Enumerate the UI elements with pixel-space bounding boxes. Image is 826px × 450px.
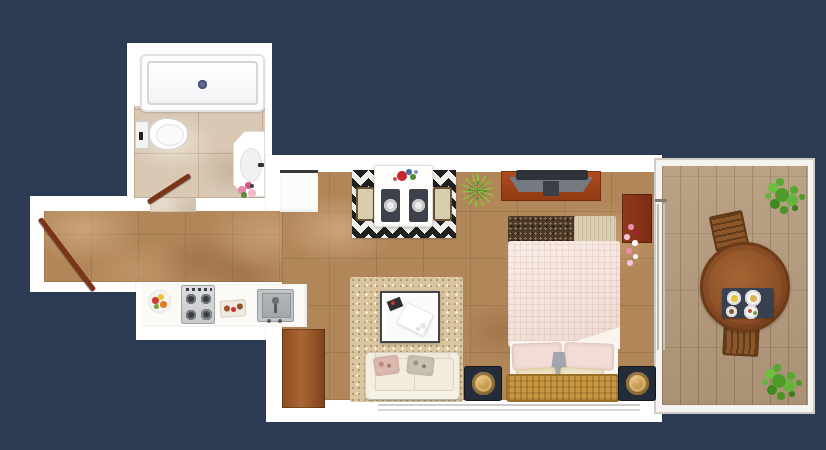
balcony-door-glass	[657, 204, 659, 350]
bed-wicker-bench	[506, 374, 620, 402]
sofa	[365, 352, 460, 400]
floor-plan	[0, 0, 826, 450]
bed-foot-blanket-beige	[574, 216, 616, 243]
nightstand-flowers	[620, 224, 646, 270]
sofa-pillow-right	[406, 355, 435, 377]
entry-cabinet-edge	[280, 170, 318, 173]
toilet-button	[139, 132, 143, 140]
pouf-right	[619, 367, 655, 400]
serving-tray	[722, 288, 774, 318]
toilet-bowl	[149, 118, 188, 150]
sofa-pillow-left	[373, 354, 400, 376]
placemat-left	[381, 189, 400, 222]
balcony-table	[700, 242, 790, 332]
tv	[516, 170, 588, 180]
bed-blanket	[508, 241, 620, 347]
kitchen-sink	[257, 289, 294, 322]
tv-base	[543, 181, 559, 196]
balcony-door-frame	[655, 199, 667, 202]
sink-faucet	[258, 163, 264, 167]
bed	[508, 215, 620, 402]
fruit-bowl	[148, 290, 171, 313]
bathroom-door-gap	[150, 198, 196, 212]
flower-bouquet	[393, 168, 419, 184]
spiky-plant	[461, 174, 494, 207]
pouf-left	[465, 367, 501, 400]
spiky-plant-inner	[468, 181, 487, 200]
bottom-window-line2	[378, 409, 640, 411]
dining-chair-right	[433, 187, 452, 221]
bathtub	[140, 54, 265, 112]
balcony-plant-bottom	[772, 374, 786, 388]
entry-cabinet	[280, 170, 318, 212]
screenshot-root: { "scene": { "type": "studio-apartment-f…	[0, 0, 826, 450]
placemat-right	[409, 189, 428, 222]
bathroom-flowers	[236, 180, 258, 200]
cutting-board	[219, 299, 246, 318]
sofa-base	[369, 391, 458, 399]
gas-stove	[181, 285, 215, 324]
coffee-table	[380, 291, 440, 343]
bottom-window-line	[378, 404, 640, 406]
balcony-plant-top	[775, 188, 789, 202]
wood-cabinet	[282, 329, 325, 408]
toilet-tank	[135, 121, 149, 149]
bathtub-drain	[198, 80, 207, 89]
balcony-door-glass2	[663, 204, 665, 350]
toilet-seat	[156, 124, 184, 146]
coffee-table-book	[387, 297, 404, 312]
coffee-table-papers	[396, 302, 433, 337]
dining-table	[374, 165, 433, 227]
stove-knobs	[186, 288, 212, 291]
bed-foot-blanket-dark	[508, 216, 576, 243]
dining-chair-left	[356, 187, 375, 221]
